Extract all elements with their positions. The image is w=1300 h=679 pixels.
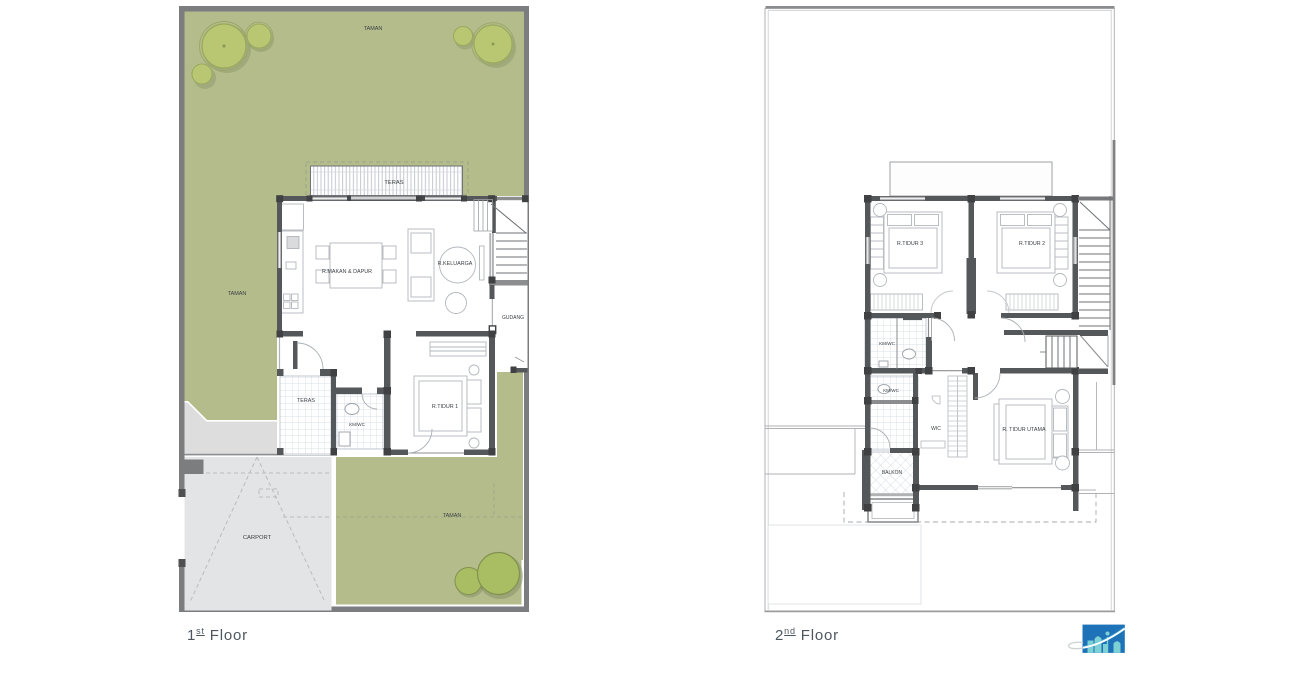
svg-text:TAMAN: TAMAN bbox=[364, 26, 383, 32]
svg-text:R. TIDUR UTAMA: R. TIDUR UTAMA bbox=[1002, 427, 1046, 433]
svg-text:TAMAN: TAMAN bbox=[443, 513, 462, 519]
svg-text:CARPORT: CARPORT bbox=[243, 535, 272, 541]
svg-text:WIC: WIC bbox=[931, 426, 941, 432]
svg-text:KM/WC: KM/WC bbox=[879, 341, 896, 346]
svg-text:R.MAKAN & DAPUR: R.MAKAN & DAPUR bbox=[322, 269, 372, 275]
svg-text:KM/WC: KM/WC bbox=[883, 388, 900, 393]
svg-text:KM/WC: KM/WC bbox=[349, 422, 366, 427]
svg-text:TERAS: TERAS bbox=[384, 180, 403, 186]
svg-text:R.KELUARGA: R.KELUARGA bbox=[438, 261, 473, 267]
svg-text:R.TIDUR 3: R.TIDUR 3 bbox=[897, 241, 923, 247]
svg-text:TAMAN: TAMAN bbox=[228, 291, 247, 297]
svg-text:R.TIDUR 2: R.TIDUR 2 bbox=[1019, 241, 1045, 247]
svg-text:BALKON: BALKON bbox=[882, 470, 903, 476]
svg-text:R.TIDUR 1: R.TIDUR 1 bbox=[432, 404, 458, 410]
svg-text:GUDANG: GUDANG bbox=[502, 315, 524, 321]
svg-text:TERAS: TERAS bbox=[297, 398, 315, 404]
